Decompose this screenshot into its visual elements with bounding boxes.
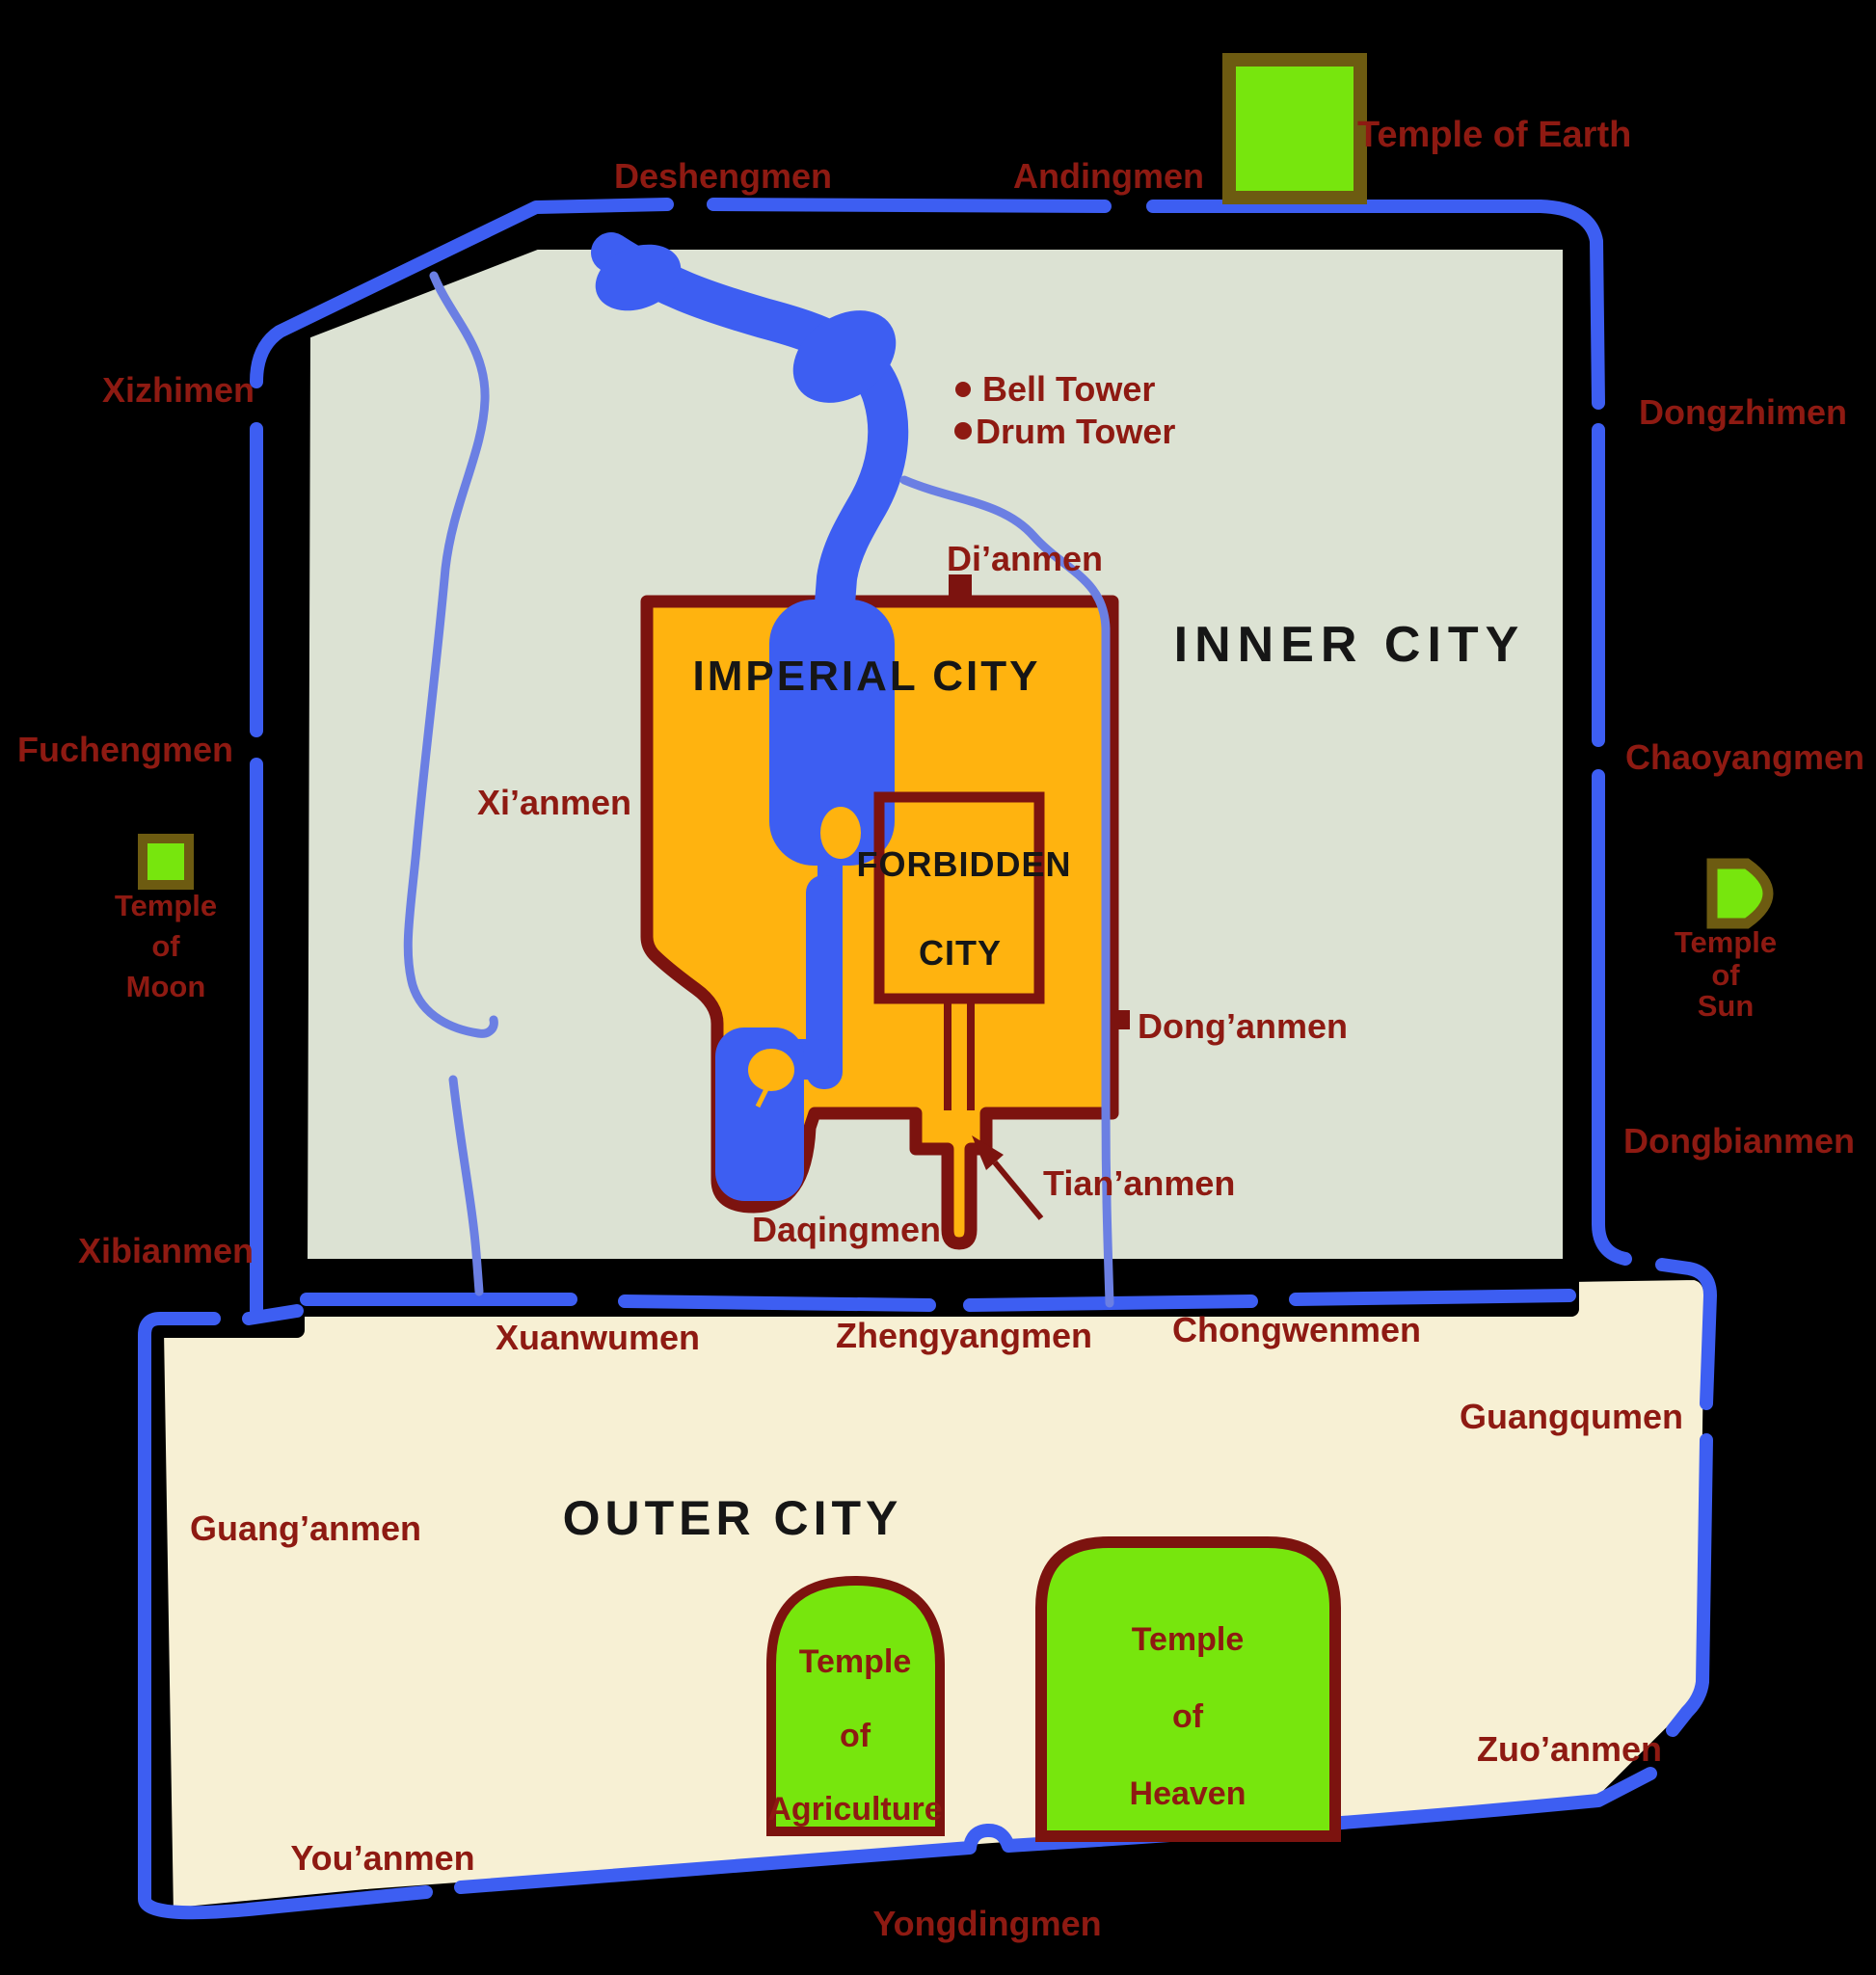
title-imperial-city: IMPERIAL CITY bbox=[693, 653, 1041, 700]
gate-xianmen: Xi’anmen bbox=[477, 783, 631, 822]
temple-of-agriculture-label-line1: Temple bbox=[799, 1643, 912, 1680]
gate-xizhimen: Xizhimen bbox=[102, 370, 255, 410]
gate-chaoyangmen: Chaoyangmen bbox=[1625, 737, 1864, 777]
gate-dongbianmen: Dongbianmen bbox=[1623, 1121, 1855, 1161]
gate-donganmen: Dong’anmen bbox=[1138, 1006, 1348, 1046]
temple-of-sun-shape bbox=[1712, 864, 1768, 923]
temple-of-sun-label-line3: Sun bbox=[1698, 989, 1755, 1023]
beijing-historical-map: IMPERIAL CITYINNER CITYFORBIDDENCITYOUTE… bbox=[0, 0, 1876, 1975]
temple-of-earth-shape bbox=[1229, 60, 1360, 198]
gate-zuoanmen: Zuo’anmen bbox=[1477, 1729, 1662, 1769]
gate-deshengmen: Deshengmen bbox=[614, 156, 832, 196]
gate-youanmen: You’anmen bbox=[290, 1838, 474, 1878]
gate-chongwenmen: Chongwenmen bbox=[1172, 1310, 1421, 1349]
temple-of-heaven-label-line2: of bbox=[1172, 1698, 1204, 1735]
gate-daqingmen: Daqingmen bbox=[752, 1210, 941, 1249]
temple-of-moon-label-line3: Moon bbox=[126, 970, 206, 1003]
dianmen-gate-mark bbox=[949, 574, 972, 601]
gate-guanganmen: Guang’anmen bbox=[190, 1508, 421, 1548]
poi-drum-tower: Drum Tower bbox=[976, 412, 1175, 451]
gate-guangqumen: Guangqumen bbox=[1460, 1397, 1683, 1436]
donganmen-gate-mark bbox=[1111, 1010, 1130, 1029]
temple-of-sun-label-line2: of bbox=[1711, 958, 1740, 992]
gate-fuchengmen: Fuchengmen bbox=[17, 730, 233, 769]
temple-of-earth-label: Temple of Earth bbox=[1357, 115, 1631, 155]
poi-bell-tower: Bell Tower bbox=[982, 369, 1155, 409]
title-forbidden-line2: CITY bbox=[919, 933, 1002, 973]
temple-of-moon-label-line1: Temple bbox=[115, 889, 217, 922]
gate-yongdingmen: Yongdingmen bbox=[872, 1904, 1101, 1943]
gate-dianmen: Di’anmen bbox=[947, 539, 1103, 578]
gate-zhengyangmen: Zhengyangmen bbox=[836, 1316, 1092, 1355]
lake-island-south bbox=[748, 1049, 794, 1091]
map-canvas: IMPERIAL CITYINNER CITYFORBIDDENCITYOUTE… bbox=[0, 0, 1876, 1975]
bell-tower-dot bbox=[955, 382, 971, 397]
gate-xibianmen: Xibianmen bbox=[78, 1231, 254, 1270]
gate-andingmen: Andingmen bbox=[1013, 156, 1204, 196]
title-outer-city: OUTER CITY bbox=[563, 1491, 903, 1545]
title-inner-city: INNER CITY bbox=[1174, 617, 1526, 673]
gate-xuanwumen: Xuanwumen bbox=[496, 1318, 700, 1357]
temple-of-agriculture-label-line3: Agriculture bbox=[767, 1791, 942, 1828]
gate-tiananmen: Tian’anmen bbox=[1043, 1163, 1235, 1203]
lake-island-north bbox=[820, 807, 861, 859]
gate-dongzhimen: Dongzhimen bbox=[1639, 392, 1847, 432]
temple-of-heaven-label-line1: Temple bbox=[1132, 1621, 1245, 1658]
title-forbidden-line1: FORBIDDEN bbox=[857, 844, 1072, 884]
drum-tower-dot bbox=[954, 422, 972, 440]
temple-of-sun-label-line1: Temple bbox=[1675, 925, 1777, 959]
temple-of-agriculture-label-line2: of bbox=[840, 1718, 871, 1754]
temple-of-moon-label-line2: of bbox=[151, 929, 180, 963]
temple-of-moon-shape bbox=[143, 839, 189, 885]
temple-of-heaven-label-line3: Heaven bbox=[1130, 1775, 1246, 1812]
